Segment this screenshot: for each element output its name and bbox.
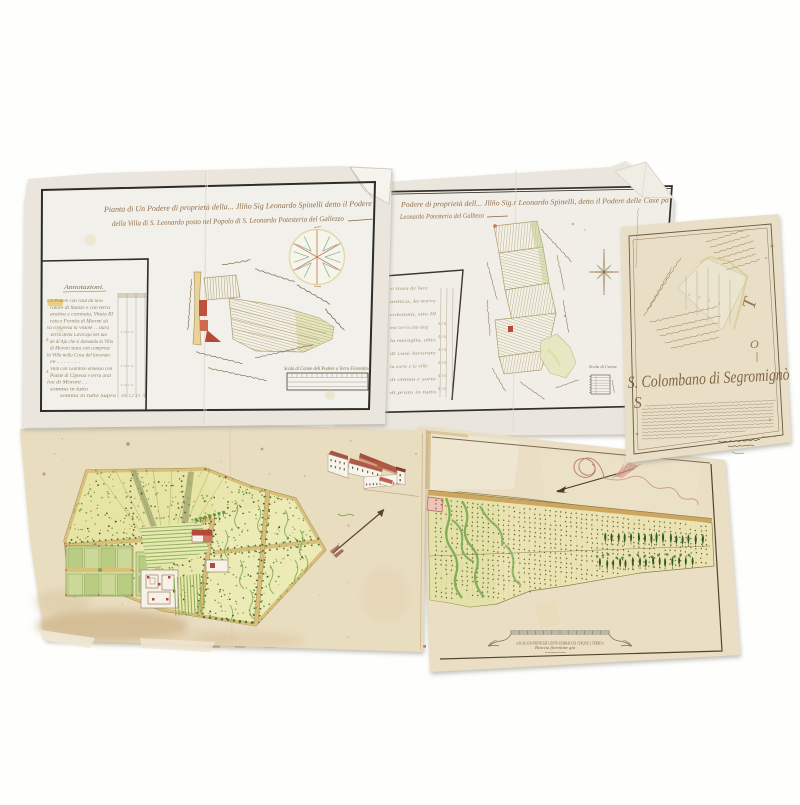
svg-text:iva di Moroni . .: iva di Moroni . .	[47, 381, 87, 386]
svg-text:4 7 8 2 11: 4 7 8 2 11	[120, 364, 134, 368]
svg-text:Annotazioni.: Annotazioni.	[63, 285, 104, 291]
svg-text:Piante di Cipressi e terra ara: Piante di Cipressi e terra arat	[49, 374, 112, 379]
svg-text:Scala di Canne: Scala di Canne	[589, 364, 617, 369]
svg-text:4 7 8 2 11: 4 7 8 2 11	[120, 330, 134, 334]
svg-text:4: 4	[718, 301, 720, 306]
svg-text:arativa e coronata, Vitata Ill: arativa e coronata, Vitata Ill	[50, 313, 114, 318]
svg-text:ratore di Stanze e con terra: ratore di Stanze e con terra	[50, 306, 111, 311]
svg-text:O: O	[750, 337, 759, 351]
svg-text:la Villa nella Casa del lavora: la Villa nella Casa del lavorato	[47, 353, 110, 358]
svg-text:4 1 6: 4 1 6	[438, 373, 446, 378]
svg-text:4 1 6: 4 1 6	[438, 334, 446, 339]
svg-text:4: 4	[698, 295, 700, 300]
svg-text:di prato in tutto: di prato in tutto	[390, 389, 437, 395]
svg-text:4: 4	[708, 298, 710, 303]
svg-text:si trova de luce: si trova de luce	[390, 285, 428, 291]
svg-text:3.: 3.	[46, 369, 49, 374]
svg-text:Braccia fiorentine gia: Braccia fiorentine gia	[535, 645, 575, 650]
svg-text:di case lavorate: di case lavorate	[390, 350, 436, 356]
svg-text:re . . . . . . .: re . . . . . . .	[50, 360, 80, 365]
svg-text:somma in tutto Supra: somma in tutto Supra	[60, 394, 117, 399]
svg-text:4 1 6: 4 1 6	[438, 360, 446, 365]
svg-text:4 7 8 2 11: 4 7 8 2 11	[120, 383, 134, 387]
svg-text:Un Podere con casa da lavo: Un Podere con casa da lavo	[47, 299, 103, 304]
svg-text:4 1 6: 4 1 6	[438, 386, 446, 391]
svg-text:do di Aja che si domanda la Vi: do di Aja che si domanda la Villa	[50, 340, 113, 345]
svg-text:somma in tutto: somma in tutto	[50, 387, 89, 392]
svg-text:2.: 2.	[46, 337, 49, 342]
svg-text:Villa con Giardino annesso con: Villa con Giardino annesso con	[50, 367, 112, 372]
svg-text:45 12 11 3: 45 12 11 3	[121, 394, 145, 398]
svg-text:4: 4	[688, 292, 690, 297]
svg-text:la corte e le ville: la corte e le ville	[390, 363, 428, 369]
svg-text:4 1 6: 4 1 6	[438, 321, 446, 326]
svg-text:ma terra cita deg: ma terra cita deg	[390, 324, 429, 330]
svg-text:di Moroni stara con comprese: di Moroni stara con comprese	[50, 347, 111, 352]
svg-text:Leonardo Potesteria del Galbez: Leonardo Potesteria del Galbezo	[399, 212, 484, 221]
svg-text:di ottima e sorte: di ottima e sorte	[390, 376, 436, 382]
svg-text:S: S	[633, 395, 642, 412]
svg-text:Scala di Canne dell Podere a T: Scala di Canne dell Podere a Terra Fiore…	[284, 367, 370, 372]
svg-text:4 1 6: 4 1 6	[438, 347, 446, 352]
svg-text:rata e Fornita di Moroni sit: rata e Fornita di Moroni sit	[50, 319, 109, 324]
